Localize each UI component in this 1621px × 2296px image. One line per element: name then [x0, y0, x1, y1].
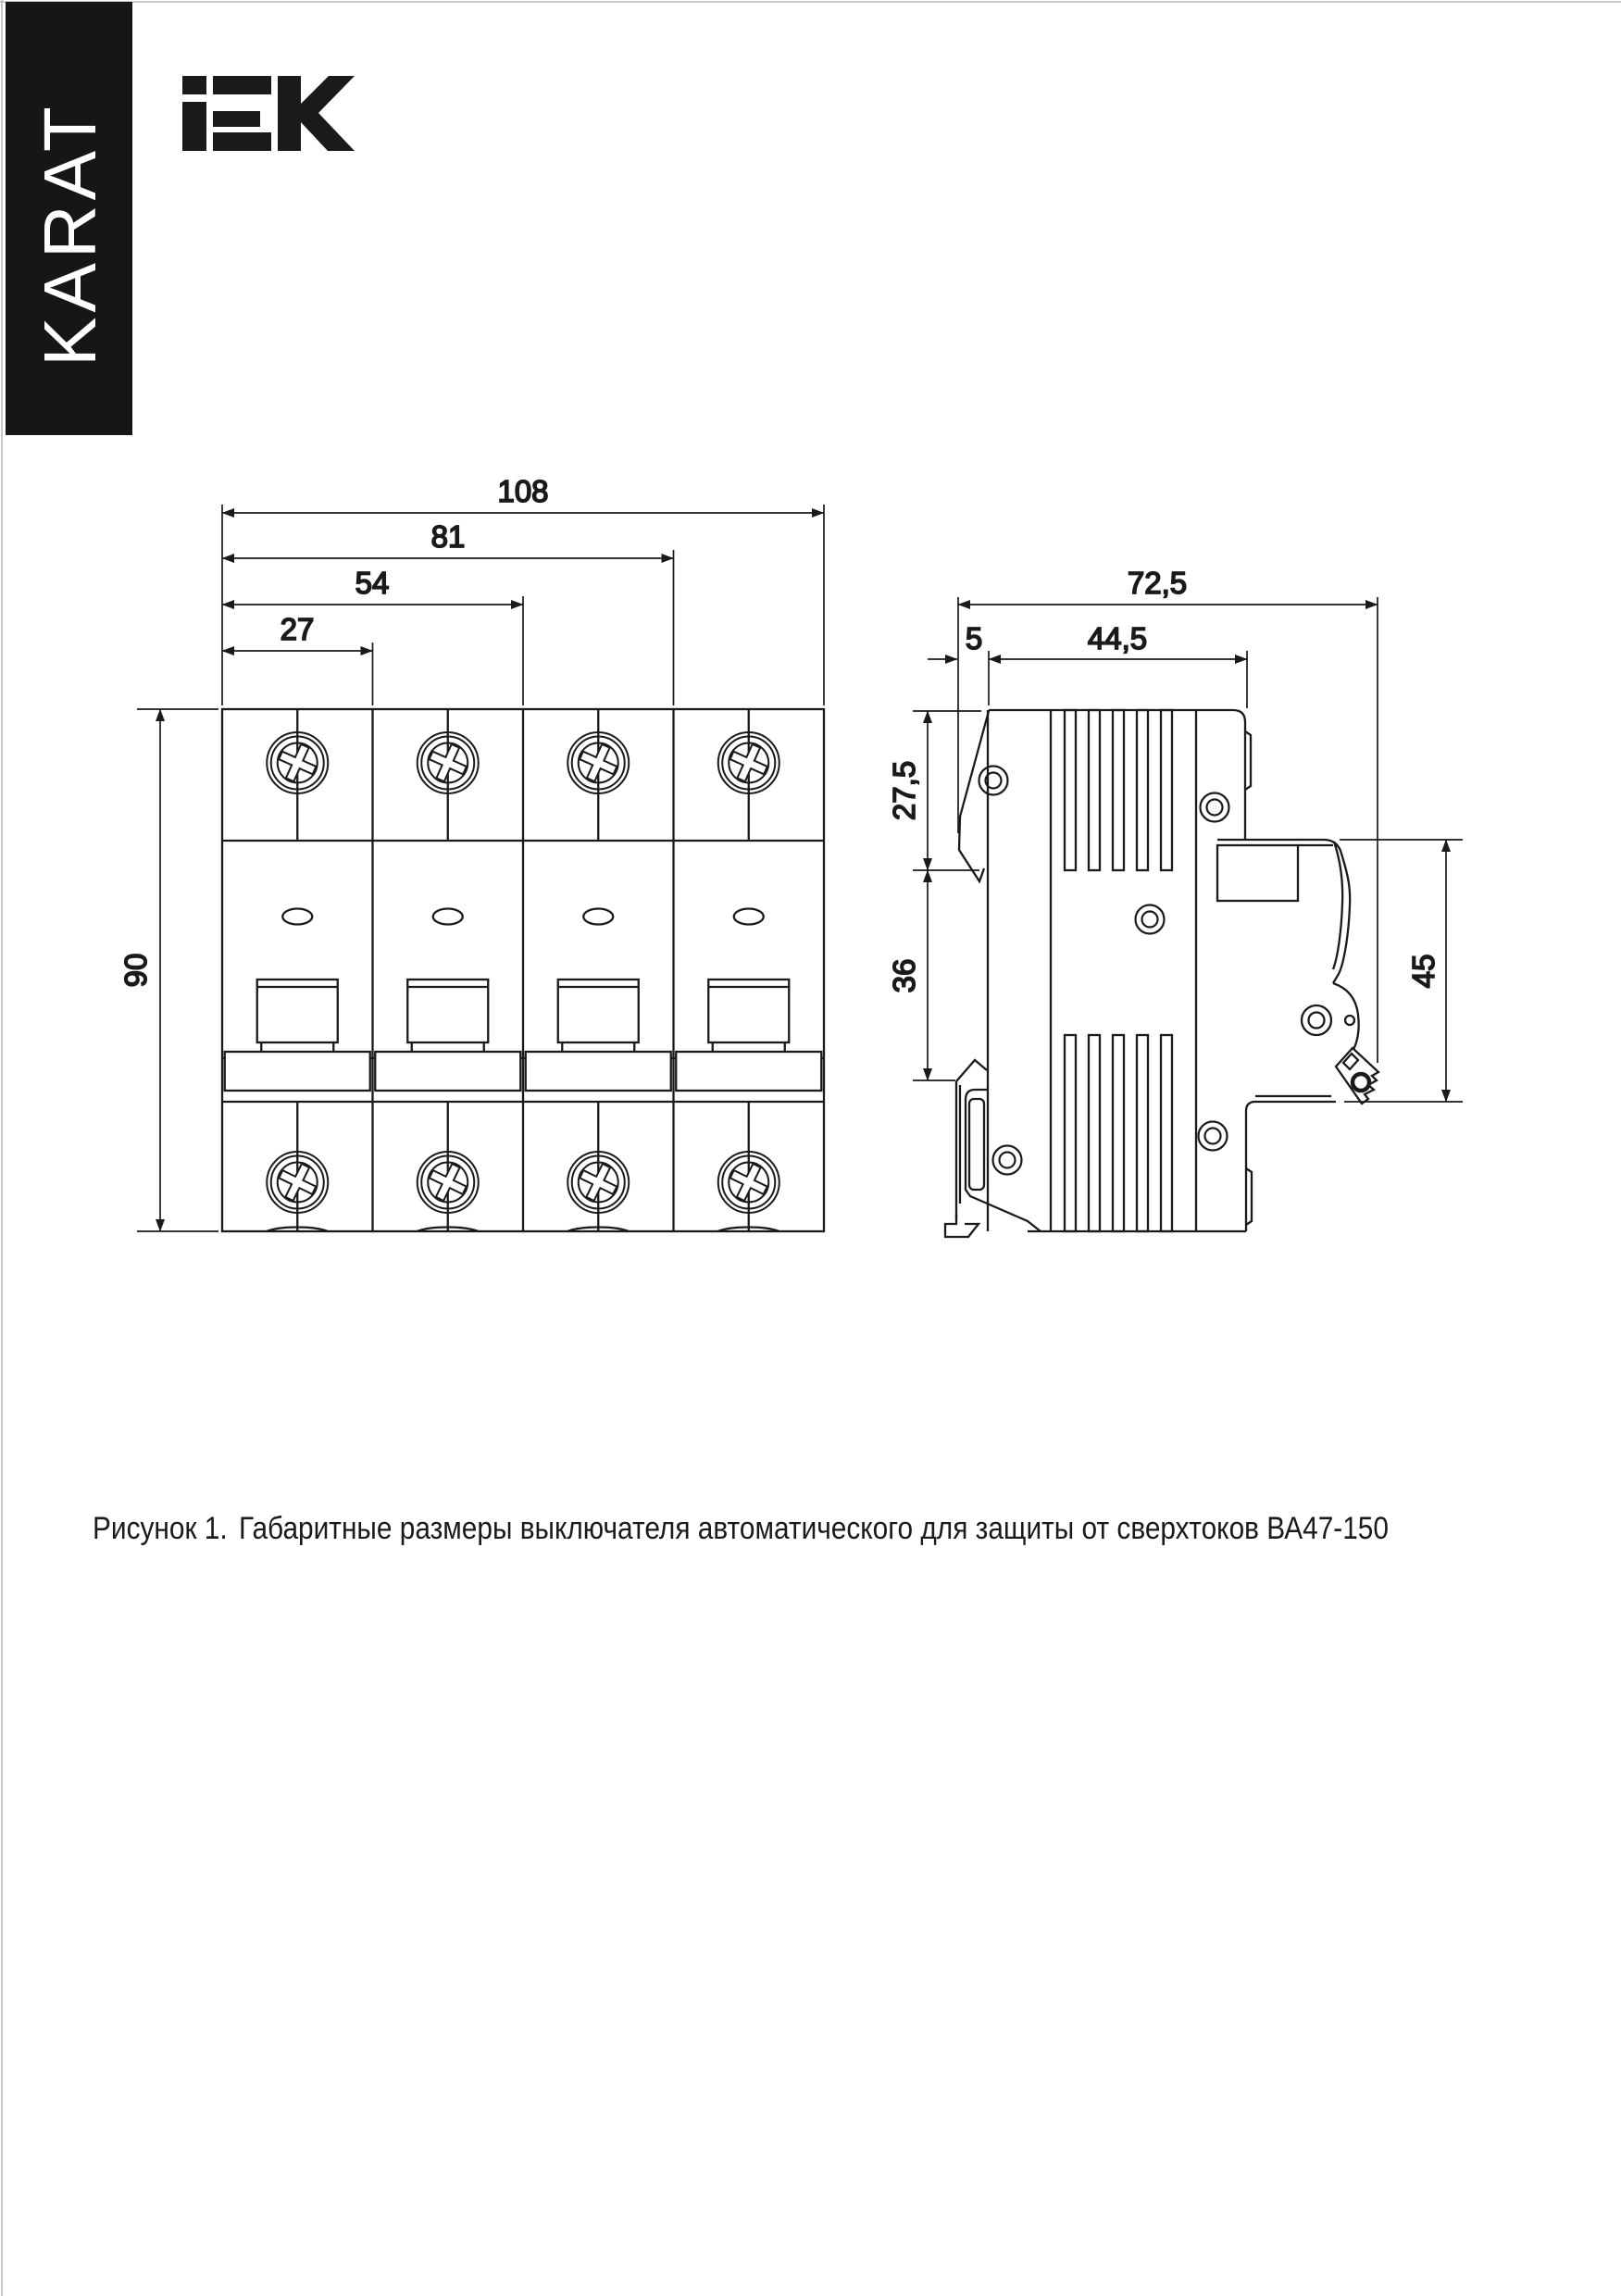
latch-small-hole: [1345, 1016, 1354, 1025]
iek-logo-e-mid-bar: [213, 111, 260, 127]
iek-logo-k-arms: [301, 76, 355, 151]
latch-pivot-inner: [1309, 1013, 1325, 1029]
rivet-icon: [993, 1146, 1022, 1175]
dimension-clip-offset: 5: [928, 621, 982, 659]
dim-label-27-5: 27,5: [887, 761, 921, 820]
lower-terminal-shelf: [1246, 1102, 1336, 1231]
rivet-icon: [1199, 1122, 1228, 1151]
din-clip-top-hook: [959, 711, 989, 881]
figure-caption-number: Рисунок 1.: [93, 1511, 228, 1546]
dim-label-90: 90: [118, 954, 153, 988]
vent-slots-top: [1065, 710, 1172, 870]
toggle-skirt: [225, 1052, 370, 1091]
dim-label-72-5: 72,5: [1128, 566, 1187, 600]
toggle-skirt: [526, 1052, 671, 1091]
toggle-profile-outer: [1324, 840, 1350, 983]
dimension-overall-depth: 72,5: [958, 566, 1378, 1063]
iek-logo: [182, 76, 355, 151]
karat-banner-label: KARAT: [29, 102, 111, 367]
toggle-skirt: [375, 1052, 520, 1091]
drawing-page: KARAT: [0, 0, 1621, 2296]
iek-logo-e-bottom-bar: [213, 132, 271, 151]
dim-label-36: 36: [887, 959, 921, 993]
toggle-handle: [708, 980, 789, 1042]
rivet-icon: [1136, 905, 1165, 934]
vent-slots-bottom: [1065, 1035, 1172, 1231]
dim-label-27: 27: [281, 612, 315, 646]
iek-logo-e-top-bar: [213, 76, 271, 94]
dim-label-54: 54: [355, 566, 390, 600]
karat-banner: KARAT: [6, 2, 132, 435]
front-view: [222, 709, 824, 1231]
terminal-recess: [1217, 845, 1298, 901]
dim-label-45: 45: [1406, 955, 1440, 989]
dim-label-5: 5: [966, 621, 982, 655]
dim-label-81: 81: [431, 519, 466, 554]
din-clip-bottom: [945, 1060, 1041, 1237]
figure-caption: Рисунок 1.Габаритные размеры выключателя…: [93, 1511, 1389, 1546]
technical-drawing-canvas: KARAT: [0, 0, 1621, 2296]
latch-pivot-outer: [1302, 1005, 1331, 1035]
toggle-profile-inner: [1333, 842, 1342, 969]
figure-caption-text: Габаритные размеры выключателя автоматич…: [239, 1511, 1389, 1546]
dimension-one-module: 27: [222, 612, 373, 705]
rivet-icon: [1201, 793, 1229, 822]
iek-logo-k-stem: [278, 76, 301, 151]
toggle-handle: [558, 980, 639, 1042]
dim-label-44-5: 44,5: [1088, 621, 1147, 655]
iek-logo-i-dot: [182, 76, 206, 94]
toggle-handle: [257, 980, 338, 1042]
dimension-din-rail-span: 36: [887, 870, 955, 1080]
rivet-icon: [979, 767, 1008, 795]
toggle-handle: [407, 980, 488, 1042]
dim-label-108: 108: [497, 474, 548, 508]
iek-logo-i-stem: [182, 102, 206, 151]
dimension-body-depth: 44,5: [989, 621, 1247, 708]
toggle-skirt: [676, 1052, 821, 1091]
dimension-height: 90: [118, 709, 218, 1231]
side-view: [945, 710, 1378, 1237]
